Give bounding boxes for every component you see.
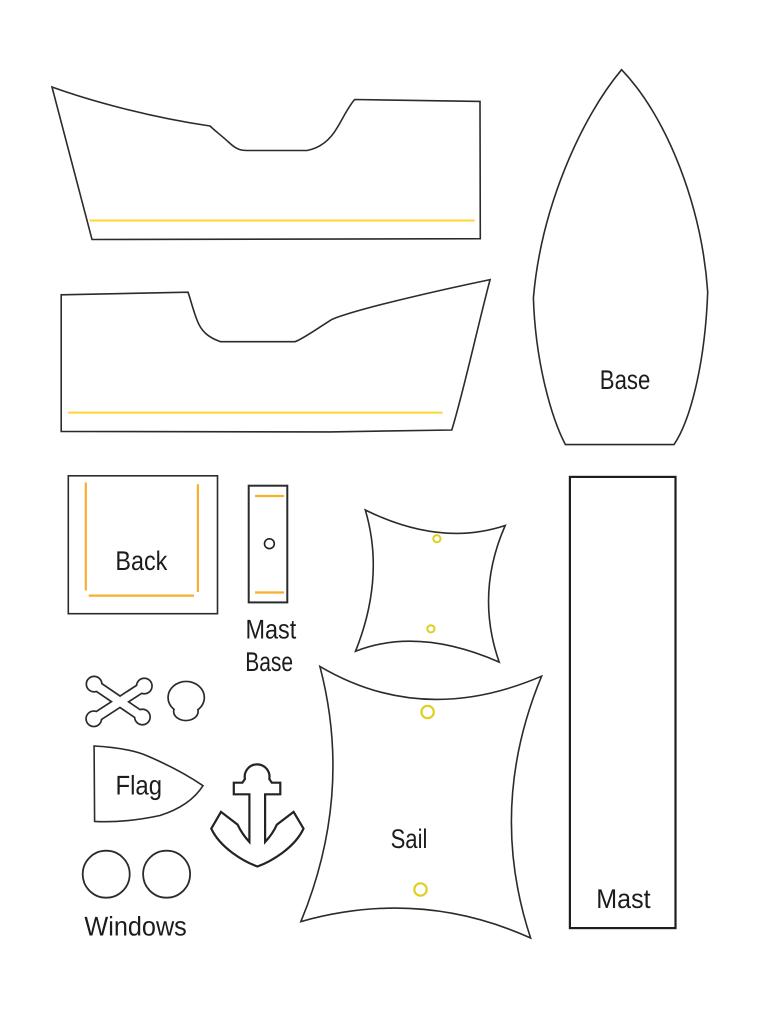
svg-text:Flag: Flag: [116, 771, 163, 801]
svg-text:Back: Back: [115, 546, 167, 576]
svg-text:Sail: Sail: [391, 824, 428, 854]
svg-text:Base: Base: [245, 647, 293, 677]
svg-text:Base: Base: [600, 365, 651, 395]
svg-text:Mast: Mast: [596, 884, 651, 914]
svg-text:Windows: Windows: [84, 912, 186, 942]
svg-text:Mast: Mast: [246, 614, 297, 644]
